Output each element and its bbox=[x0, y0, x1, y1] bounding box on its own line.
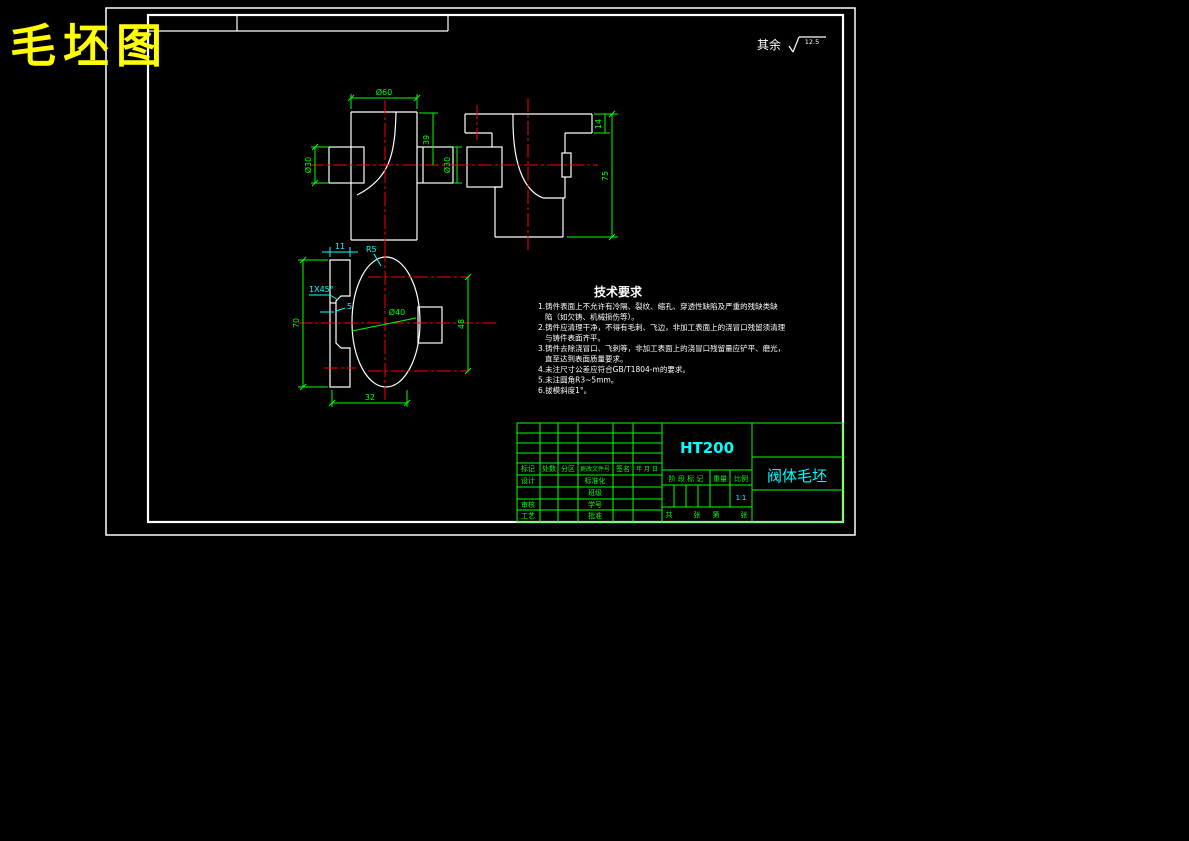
dim-bottom-right: 48 bbox=[457, 319, 466, 329]
front-view-dim-lines bbox=[311, 94, 462, 186]
tech-line: 1.铸件表面上不允许有冷隔、裂纹、缩孔、穿透性缺陷及严重的残缺类缺 bbox=[538, 301, 778, 311]
inner-border bbox=[148, 15, 843, 522]
tb-part-name: 阀体毛坯 bbox=[767, 467, 827, 485]
tech-line: 与铸件表面齐平。 bbox=[545, 333, 605, 343]
side-left-boss bbox=[467, 147, 502, 187]
tb-rev-zone: 分区 bbox=[561, 464, 575, 473]
sheet-frame bbox=[106, 8, 855, 535]
tb-rev-date: 年 月 日 bbox=[636, 465, 658, 473]
dim-bottom-bore: Ø40 bbox=[389, 307, 405, 317]
dim-side-height: 75 bbox=[601, 171, 610, 181]
technical-requirements: 技术要求 1.铸件表面上不允许有冷隔、裂纹、缩孔、穿透性缺陷及严重的残缺类缺 陷… bbox=[538, 284, 786, 395]
tech-line: 3.铸件去除浇冒口、飞刺等，非加工表面上的浇冒口残留量应铲平、磨光， bbox=[538, 343, 785, 353]
tb-rev-mark: 标记 bbox=[521, 464, 535, 473]
tb-material-value: HT200 bbox=[680, 439, 734, 457]
dim-step: 5 bbox=[347, 302, 352, 311]
tb-rev-docno: 更改文件号 bbox=[580, 465, 610, 473]
front-view: Ø60 Ø30 39 Ø30 bbox=[303, 87, 468, 251]
surface-roughness-note: 其余 12.5 bbox=[757, 37, 826, 52]
tb-scale-value: 1∶1 bbox=[736, 494, 747, 502]
bottom-view: 70 32 Ø40 48 11 R5 1X45° 5 bbox=[292, 242, 497, 407]
tb-sheet-total-label: 共 bbox=[666, 510, 673, 519]
dim-chamfer: 1X45° bbox=[309, 285, 334, 294]
dim-front-top: Ø60 bbox=[376, 87, 392, 97]
front-view-outline bbox=[329, 112, 453, 240]
tb-sheet-no-label: 第 bbox=[713, 510, 720, 519]
tb-approve-label: 批准 bbox=[588, 511, 602, 520]
tech-line: 5.未注圆角R3~5mm。 bbox=[538, 375, 618, 385]
tech-line: 直至达到表面质量要求。 bbox=[545, 354, 628, 364]
dim-flange-width: 11 bbox=[335, 242, 345, 251]
tb-sheet-no-unit: 张 bbox=[741, 510, 748, 519]
tech-line: 2.铸件应清理干净，不得有毛刺、飞边，非加工表面上的浇冒口残留须清理 bbox=[538, 322, 786, 332]
drawing-title: 毛坯图 bbox=[10, 19, 169, 73]
tb-design-label: 设计 bbox=[521, 476, 535, 485]
tb-rev-sign: 签名 bbox=[616, 464, 630, 473]
tb-weight-label: 重量 bbox=[713, 475, 727, 483]
tb-process-label: 工艺 bbox=[521, 512, 535, 520]
side-view: 14 75 bbox=[455, 98, 618, 250]
dim-side-top: 14 bbox=[594, 119, 603, 129]
cad-canvas: 毛坯图 其余 12.5 bbox=[0, 0, 1189, 841]
dim-bottom-width: 32 bbox=[365, 393, 375, 402]
tb-sheet-total-unit: 张 bbox=[694, 510, 701, 519]
roughness-value: 12.5 bbox=[805, 38, 819, 46]
tech-line: 6.拔模斜度1°。 bbox=[538, 385, 591, 395]
tb-class-label: 班级 bbox=[588, 488, 602, 497]
tb-standard-label: 标准化 bbox=[585, 476, 606, 485]
dim-front-boss: Ø30 bbox=[442, 157, 452, 173]
tb-scale-label: 比例 bbox=[734, 474, 748, 483]
bottom-right-boss bbox=[418, 307, 442, 343]
tech-line: 陷（如欠铸、机械损伤等）。 bbox=[545, 312, 639, 322]
title-block: 标记 处数 分区 更改文件号 签名 年 月 日 设计 标准化 班级 审核 学号 … bbox=[517, 423, 843, 522]
dim-radius: R5 bbox=[366, 245, 377, 254]
outer-border bbox=[106, 8, 855, 535]
dim-front-right: 39 bbox=[422, 135, 431, 145]
side-view-centerlines bbox=[455, 98, 598, 250]
dim-bottom-height: 70 bbox=[292, 318, 301, 328]
tb-stage-label: 阶 段 标 记 bbox=[669, 474, 704, 483]
surface-prefix-label: 其余 bbox=[757, 37, 781, 52]
dim-front-left: Ø30 bbox=[303, 157, 313, 173]
drawing-sheet: 毛坯图 其余 12.5 bbox=[0, 0, 1189, 841]
bottom-view-centerlines bbox=[298, 248, 497, 400]
bottom-view-aux-lines bbox=[309, 247, 381, 312]
front-view-centerlines bbox=[310, 100, 468, 251]
tb-check-label: 审核 bbox=[521, 500, 535, 509]
tb-rev-count: 处数 bbox=[542, 464, 556, 473]
tech-line: 4.未注尺寸公差应符合GB/T1804-m的要求。 bbox=[538, 364, 690, 374]
tb-number-label: 学号 bbox=[588, 500, 602, 509]
tech-heading: 技术要求 bbox=[594, 284, 643, 299]
